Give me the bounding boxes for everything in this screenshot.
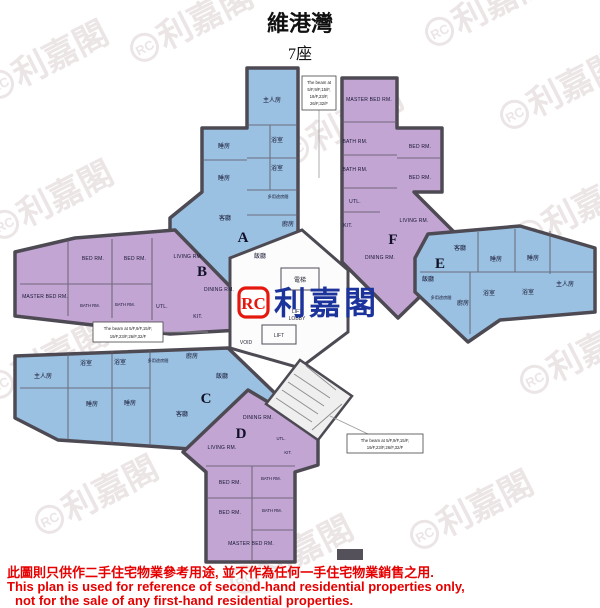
unit-letter-d: D	[236, 426, 247, 442]
room-label-d-utility: UTL.	[276, 436, 285, 441]
room-label-c-bed2: 睡房	[124, 399, 136, 407]
room-label-f-utility: UTL.	[349, 199, 361, 205]
watermark-text: 利嘉閣	[12, 154, 120, 234]
room-label-a-dining: 飯廳	[254, 252, 266, 260]
room-label-e-bed2: 睡房	[527, 254, 539, 262]
room-label-d-bed1: BED RM.	[219, 480, 241, 486]
room-label-e-multi: 多用途房間	[431, 294, 452, 301]
room-label-f-living: LIVING RM.	[400, 218, 429, 224]
beam-note-top: The beam at 5/F,9/F,15/F, 19/F,23/F, 26/…	[302, 76, 336, 110]
room-label-d-dining: DINING RM.	[243, 415, 273, 421]
page-title: 維港灣	[0, 6, 600, 38]
room-label-b-bath2: BATH RM.	[115, 302, 135, 307]
beam-note-top-line3: 19/F,23/F,	[310, 94, 329, 99]
ricacorp-rc-icon: RC	[241, 294, 266, 313]
beam-note-left: The beam at 5/F,9/F,15/F, 19/F,23/F,26/F…	[93, 322, 163, 342]
room-label-d-living: LIVING RM.	[208, 445, 237, 451]
room-label-a-bed1: 睡房	[218, 142, 230, 150]
room-label-d-master: MASTER BED RM.	[228, 541, 274, 547]
watermark-text: 利嘉閣	[57, 449, 165, 529]
beam-note-top-line4: 26/F,32/F	[310, 101, 328, 106]
room-label-e-bath2: 浴室	[522, 288, 534, 296]
watermark: RC 利嘉閣	[515, 309, 600, 403]
beam-note-bottom: The beam at 5/F,9/F,15/F, 19/F,23/F,26/F…	[347, 434, 423, 453]
room-label-e-bed1: 睡房	[490, 255, 502, 263]
room-label-a-bath1: 浴室	[271, 136, 283, 144]
unit-letter-e: E	[435, 256, 445, 272]
room-label-a-bath2: 浴室	[271, 164, 283, 172]
room-label-f-dining: DINING RM.	[365, 255, 395, 261]
beam-note-bottom-line1: The beam at 5/F,9/F,15/F,	[361, 438, 409, 443]
void-label: VOID	[240, 340, 253, 346]
unit-letter-b: B	[197, 264, 207, 280]
bay-window-block	[337, 549, 363, 560]
floor-plan-page: RC 利嘉閣 RC 利嘉閣 RC 利嘉閣 RC 利嘉閣 RC 利嘉閣 RC 利嘉…	[0, 0, 600, 608]
watermark-text: 利嘉閣	[542, 309, 600, 389]
disclaimer-line-en1: This plan is used for reference of secon…	[7, 580, 465, 594]
room-label-b-bed1: BED RM.	[82, 256, 104, 262]
room-label-b-bed2: BED RM.	[124, 256, 146, 262]
room-label-f-kitchen: KIT.	[343, 223, 352, 229]
unit-letter-f: F	[388, 232, 397, 248]
room-label-a-living: 客廳	[219, 214, 231, 222]
disclaimer: 此圖則只供作二手住宅物業參考用途, 並不作為任何一手住宅物業銷售之用. This…	[7, 566, 465, 607]
room-label-b-bath1: BATH RM.	[80, 303, 100, 308]
room-label-b-master: MASTER BED RM.	[22, 294, 68, 300]
room-label-d-kitchen: KIT.	[284, 450, 291, 455]
room-label-c-bath1: 浴室	[80, 359, 92, 367]
room-label-a-bed2: 睡房	[218, 174, 230, 182]
room-label-d-bath2: BATH RM.	[262, 508, 282, 513]
beam-note-top-line1: The beam at	[307, 80, 332, 85]
ricacorp-logo-text: 利嘉閣	[274, 285, 379, 321]
watermark-text: 利嘉閣	[432, 464, 540, 544]
room-label-d-bath1: BATH RM.	[261, 476, 281, 481]
room-label-f-bath2: BATH RM.	[342, 167, 367, 173]
disclaimer-line-en2: not for the sale of any first-hand resid…	[7, 594, 465, 608]
floor-plan-drawing: RC 利嘉閣 RC 利嘉閣 RC 利嘉閣 RC 利嘉閣 RC 利嘉閣 RC 利嘉…	[0, 0, 600, 608]
room-label-c-kitchen: 廚房	[186, 352, 198, 360]
room-label-c-bed1: 睡房	[86, 400, 98, 408]
room-label-b-kitchen: KIT.	[193, 314, 202, 320]
disclaimer-line-zh: 此圖則只供作二手住宅物業參考用途, 並不作為任何一手住宅物業銷售之用.	[7, 566, 465, 580]
room-label-c-dining: 飯廳	[216, 372, 228, 380]
room-label-e-bath1: 浴室	[483, 289, 495, 297]
room-label-a-multi: 多用途房間	[268, 193, 289, 200]
unit-letter-a: A	[238, 230, 249, 246]
watermark: RC 利嘉閣	[405, 464, 540, 558]
ricacorp-logo: RC 利嘉閣	[239, 285, 379, 321]
page-subtitle: 7座	[0, 40, 600, 64]
beam-note-left-line2: 19/F,23/F,26/F,32/F	[110, 334, 147, 339]
room-label-c-bath2: 浴室	[114, 358, 126, 366]
room-label-a-master: 主人房	[263, 96, 281, 104]
room-label-e-master: 主人房	[556, 280, 574, 288]
room-label-e-living: 客廳	[454, 244, 466, 252]
unit-letter-c: C	[201, 391, 212, 407]
lift-label: LIFT	[274, 333, 284, 339]
room-label-f-master: MASTER BED RM.	[346, 97, 392, 103]
room-label-b-dining: DINING RM.	[204, 287, 234, 293]
room-label-b-utility: UTL.	[156, 304, 168, 310]
room-label-c-multi: 多用途房間	[148, 357, 169, 364]
room-label-e-dining: 飯廳	[422, 275, 434, 283]
room-label-c-living: 客廳	[176, 410, 188, 418]
beam-note-left-line1: The beam at 5/F,9/F,15/F,	[104, 326, 152, 331]
beam-note-bottom-line2: 19/F,23/F,26/F,32/F	[367, 445, 404, 450]
room-label-b-living: LIVING RM.	[174, 254, 203, 260]
room-label-d-bed2: BED RM.	[219, 510, 241, 516]
room-label-c-master: 主人房	[34, 372, 52, 380]
watermark: RC 利嘉閣	[0, 154, 120, 248]
room-label-f-bed2: BED RM.	[409, 175, 431, 181]
room-label-f-bath1: BATH RM.	[342, 139, 367, 145]
room-label-a-kitchen: 廚房	[282, 220, 294, 228]
watermark: RC 利嘉閣	[30, 449, 165, 543]
lift-shaft-label: 電梯	[294, 276, 306, 284]
room-label-f-bed1: BED RM.	[409, 144, 431, 150]
room-label-e-kitchen: 廚房	[457, 299, 469, 307]
beam-note-top-line2: 5/F,9/F,15/F,	[307, 87, 330, 92]
